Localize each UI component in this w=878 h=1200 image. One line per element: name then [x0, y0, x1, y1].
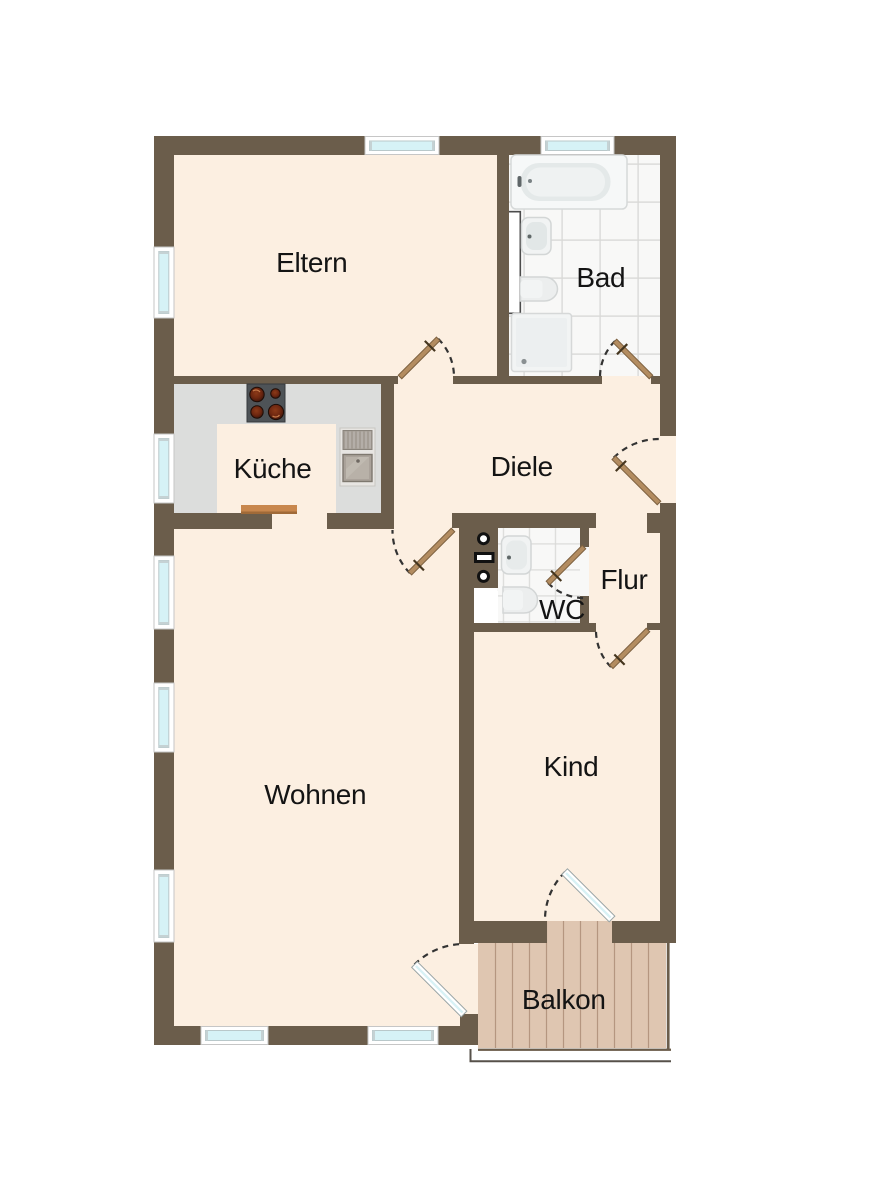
svg-text:Diele: Diele: [491, 451, 553, 482]
svg-text:Kind: Kind: [544, 751, 599, 782]
svg-text:WC: WC: [539, 594, 585, 625]
svg-text:Wohnen: Wohnen: [264, 779, 366, 810]
svg-text:Flur: Flur: [600, 564, 647, 595]
svg-text:Bad: Bad: [576, 262, 625, 293]
svg-text:Eltern: Eltern: [276, 247, 347, 278]
svg-text:Balkon: Balkon: [522, 984, 606, 1015]
svg-text:Küche: Küche: [234, 453, 312, 484]
